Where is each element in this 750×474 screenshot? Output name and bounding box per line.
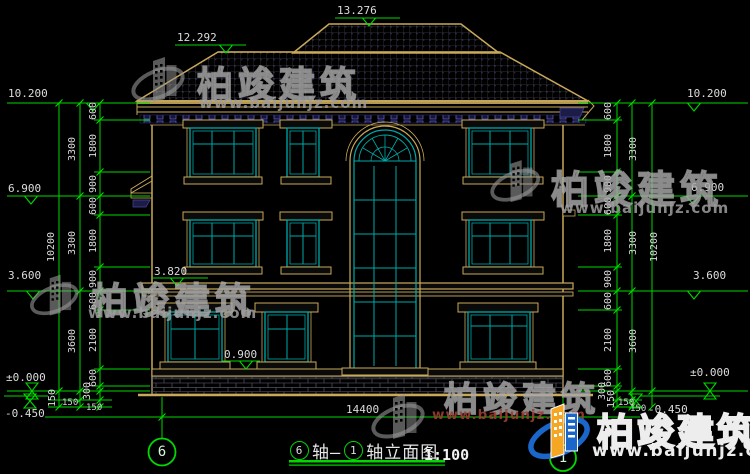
- dim-label: 2100: [604, 328, 614, 352]
- watermark-url: www.baijunjz.com: [88, 304, 257, 322]
- dim-label: 600: [604, 292, 614, 310]
- drawing-scale: 1:100: [424, 446, 469, 464]
- elev-13276: 13.276: [337, 5, 377, 16]
- brand-url: www.baijunjz.com: [592, 441, 750, 461]
- dim-label: 1800: [89, 134, 99, 158]
- dim-label: 1800: [89, 229, 99, 253]
- dim-label: 3300: [629, 231, 639, 255]
- window-1f-mid: [255, 303, 318, 369]
- dim-label: 600: [89, 197, 99, 215]
- watermark-url: www.baijunjz.com: [199, 94, 368, 112]
- dim-label: 1800: [604, 229, 614, 253]
- dim-label-total: 10200: [47, 232, 57, 262]
- elev-left-10200: 10.200: [8, 88, 48, 99]
- watermark-logo-icon: [490, 156, 546, 208]
- dim-label: 1800: [604, 134, 614, 158]
- window-1f-right: [458, 303, 538, 369]
- dim-label: 150: [86, 404, 102, 413]
- window-3f-mid: [280, 120, 332, 184]
- dim-label: 300: [83, 382, 93, 400]
- dim-label: 3600: [629, 329, 639, 353]
- dim-label: 3300: [68, 231, 78, 255]
- arched-window: [342, 122, 428, 375]
- window-2f-right: [462, 212, 544, 274]
- elev-inner-0900: 0.900: [224, 349, 257, 360]
- window-2f-mid: [280, 212, 332, 274]
- title-axis-start-bubble: 6: [290, 441, 309, 460]
- porch-eave-left: [131, 176, 152, 207]
- dim-label: 3300: [629, 137, 639, 161]
- dim-label: 900: [89, 175, 99, 193]
- dim-label: 3300: [68, 137, 78, 161]
- dim-label: 3600: [68, 329, 78, 353]
- window-2f-left: [183, 212, 263, 274]
- window-3f-left: [183, 120, 263, 184]
- elev-left-0000: ±0.000: [6, 372, 46, 383]
- dim-label: 600: [89, 102, 99, 120]
- watermark-url: www.baijunjz.com: [560, 199, 729, 217]
- dim-label: 2100: [89, 328, 99, 352]
- dim-label: 900: [604, 270, 614, 288]
- axis-bubble-left-label: 6: [158, 444, 166, 460]
- brand-logo-icon: [525, 396, 595, 468]
- dim-label: 150: [48, 389, 58, 407]
- watermark-logo-icon: [366, 390, 436, 445]
- dim-label: 600: [604, 102, 614, 120]
- cad-elevation-drawing: 13.276 12.292 10.200 6.900 3.600 ±0.000 …: [0, 0, 750, 474]
- dim-label: 150: [62, 399, 78, 408]
- title-axis-end-bubble: 1: [344, 441, 363, 460]
- elev-right-0000: ±0.000: [690, 367, 730, 378]
- elev-left-6900: 6.900: [8, 183, 41, 194]
- elev-right-10200: 10.200: [687, 88, 727, 99]
- elev-right-3600: 3.600: [693, 270, 726, 281]
- watermark-logo-icon: [130, 53, 192, 108]
- watermark-logo-icon: [28, 271, 86, 321]
- elev-left-neg450: -0.450: [5, 408, 45, 419]
- title-axis-mid: 轴—: [312, 438, 341, 463]
- elev-12292: 12.292: [177, 32, 217, 43]
- dim-label-total: 10200: [650, 232, 660, 262]
